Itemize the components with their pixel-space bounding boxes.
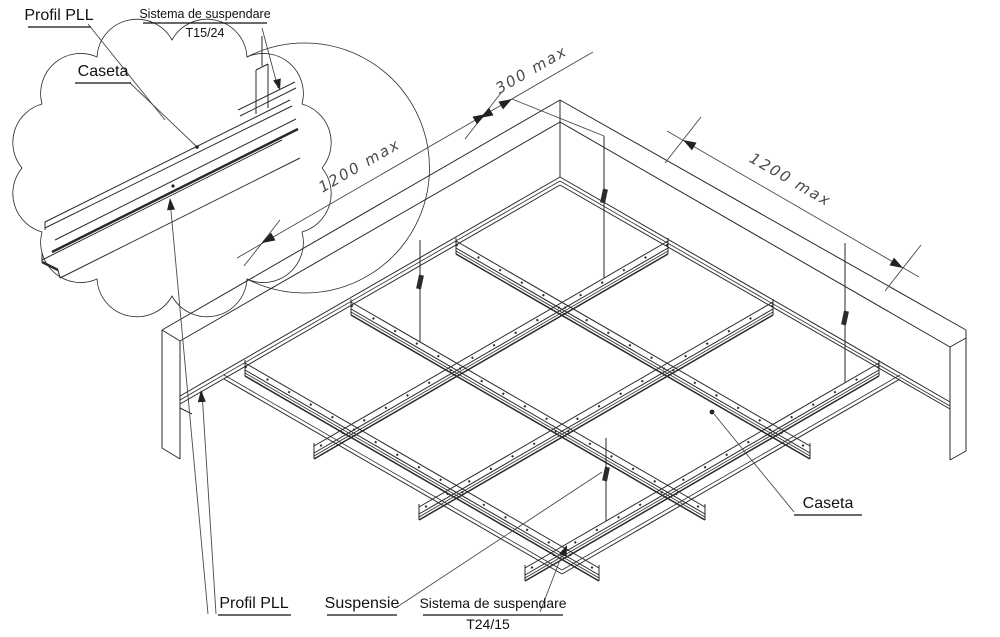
dimension-1200-right-text: 1200 max <box>746 149 834 210</box>
label-sistema-suspendare-bottom: Sistema de suspendare T24/15 <box>419 595 566 632</box>
dimension-1200-right: 1200 max <box>665 117 921 291</box>
dimension-chain-left: 1200 max 300 max <box>237 42 604 266</box>
diagram-canvas: 1200 max 300 max 1200 max <box>0 0 1000 637</box>
suspension-hanger-4 <box>841 243 849 383</box>
ceiling-system-diagram: 1200 max 300 max 1200 max <box>0 0 1000 637</box>
back-wall-right <box>560 100 966 402</box>
label-sistema-suspendare-top: Sistema de suspendare T15/24 <box>139 7 270 40</box>
caseta-right-text: Caseta <box>803 495 854 512</box>
wall-end-block-left <box>162 330 180 459</box>
leader-lines <box>88 24 794 614</box>
label-caseta-right: Caseta <box>794 495 862 515</box>
suspension-hanger-2 <box>416 240 424 342</box>
perimeter-pll-angle <box>180 181 950 414</box>
suspension-hanger-1 <box>600 136 608 278</box>
label-profil-pll-top: Profil PLL <box>24 7 93 27</box>
profil-pll-top-text: Profil PLL <box>24 7 93 24</box>
sistema-top-line2-text: T15/24 <box>186 26 225 40</box>
profil-pll-bottom-text: Profil PLL <box>219 595 288 612</box>
wall-end-block-right <box>950 330 966 460</box>
sistema-top-line1-text: Sistema de suspendare <box>139 7 270 21</box>
suspension-hanger-3 <box>602 438 610 521</box>
panel-edges <box>224 375 900 574</box>
sistema-bottom-line1-text: Sistema de suspendare <box>419 595 566 611</box>
label-profil-pll-bottom: Profil PLL <box>218 595 291 615</box>
caseta-top-text: Caseta <box>78 63 129 80</box>
label-caseta-top: Caseta <box>75 63 131 83</box>
suspensie-text: Suspensie <box>325 595 400 612</box>
sistema-bottom-line2-text: T24/15 <box>466 616 510 632</box>
dimension-300-text: 300 max <box>492 42 570 98</box>
label-suspensie: Suspensie <box>325 595 400 615</box>
